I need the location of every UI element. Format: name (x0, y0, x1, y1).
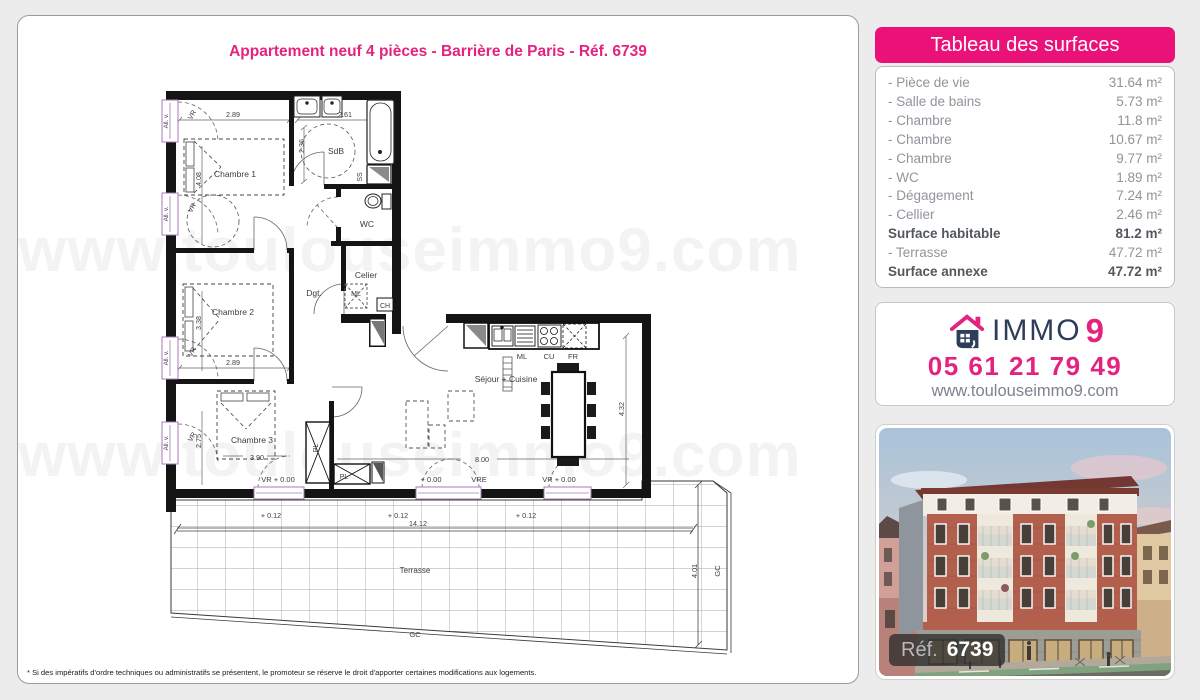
terrace (171, 481, 731, 654)
page-title: Appartement neuf 4 pièces - Barrière de … (18, 43, 858, 61)
toilet (365, 194, 391, 209)
svg-text:All. v.: All. v. (163, 113, 170, 128)
building-photo: Réf. 6739 (879, 428, 1171, 676)
surfaces-table: - Pièce de vie31.64 m² - Salle de bains5… (875, 66, 1175, 288)
label-wc: WC (360, 219, 374, 229)
ref-label: Réf. (901, 639, 938, 662)
surfaces-header: Tableau des surfaces (875, 27, 1175, 63)
svg-text:2.36: 2.36 (297, 139, 306, 153)
surface-row: - Pièce de vie31.64 m² (888, 74, 1162, 93)
label-chambre3: Chambre 3 (231, 435, 273, 445)
footnote: * Si des impératifs d'ordre techniques o… (27, 668, 536, 677)
svg-text:CU: CU (544, 352, 555, 361)
svg-text:+ 0.12: + 0.12 (388, 511, 408, 520)
svg-text:VR: VR (187, 202, 198, 214)
building-photo-card: Réf. 6739 (875, 424, 1175, 680)
label-sdb: SdB (328, 146, 344, 156)
surface-row: - Terrasse47.72 m² (888, 244, 1162, 263)
svg-text:All. v.: All. v. (163, 435, 170, 450)
svg-text:VR + 0.00: VR + 0.00 (261, 475, 295, 484)
floor-plan: Chambre 1 SdB WC Celier Dgt. Chambre 2 C… (18, 16, 859, 684)
svg-text:GC: GC (713, 565, 722, 577)
surface-row: - Chambre11.8 m² (888, 112, 1162, 131)
furniture (183, 96, 599, 484)
svg-text:2.61: 2.61 (338, 110, 352, 119)
label-cellier: Celier (355, 270, 377, 280)
plan-card: www.toulouseimmo9.com www.toulouseimmo9.… (17, 15, 859, 684)
surface-row: - Salle de bains5.73 m² (888, 93, 1162, 112)
svg-text:+ 0.12: + 0.12 (261, 511, 281, 520)
surfaces-header-label: Tableau des surfaces (930, 34, 1119, 57)
surface-row: - Dégagement7.24 m² (888, 187, 1162, 206)
svg-text:4.08: 4.08 (194, 172, 203, 186)
svg-text:2.89: 2.89 (226, 110, 240, 119)
ref-number: 6739 (947, 638, 994, 662)
surface-row: - Cellier2.46 m² (888, 206, 1162, 225)
svg-text:CH: CH (380, 303, 390, 310)
svg-text:FR: FR (568, 352, 579, 361)
surface-row: - Chambre10.67 m² (888, 131, 1162, 150)
sofa (406, 391, 474, 448)
svg-text:PL: PL (313, 444, 320, 453)
svg-text:VR + 0.00: VR + 0.00 (542, 475, 576, 484)
surface-row: - WC1.89 m² (888, 169, 1162, 188)
surface-row: - Chambre9.77 m² (888, 150, 1162, 169)
website-link[interactable]: www.toulouseimmo9.com (876, 382, 1174, 401)
svg-text:3.38: 3.38 (194, 316, 203, 330)
agency-card: IMMO9 05 61 21 79 49 www.toulouseimmo9.c… (875, 302, 1175, 406)
label-dgt: Dgt. (306, 288, 322, 298)
turning-circle-chambre1 (187, 195, 239, 247)
svg-text:VRE: VRE (471, 475, 486, 484)
svg-text:ML: ML (517, 352, 527, 361)
brand-immo: IMMO (992, 314, 1082, 348)
svg-text:GC: GC (409, 630, 421, 639)
surface-row-total-annexe: Surface annexe47.72 m² (888, 263, 1162, 282)
svg-text:4.32: 4.32 (617, 402, 626, 416)
svg-text:All. v.: All. v. (163, 350, 170, 365)
label-terrasse: Terrasse (400, 566, 431, 575)
svg-text:ML: ML (351, 291, 361, 298)
bed-chambre3 (217, 391, 275, 459)
phone-number[interactable]: 05 61 21 79 49 (876, 351, 1174, 382)
agency-logo: IMMO9 (876, 312, 1174, 350)
svg-text:14.12: 14.12 (409, 519, 427, 528)
label-sejour: Séjour + Cuisine (475, 374, 538, 384)
brick-towers (927, 514, 1137, 622)
label-chambre1: Chambre 1 (214, 169, 256, 179)
svg-text:PL: PL (340, 474, 349, 481)
svg-text:3.90: 3.90 (250, 453, 264, 462)
surface-row-total-habitable: Surface habitable81.2 m² (888, 225, 1162, 244)
svg-text:8.00: 8.00 (475, 455, 489, 464)
dining-table (541, 363, 596, 466)
kitchen-counter (489, 323, 599, 349)
svg-text:All. v.: All. v. (163, 206, 170, 221)
duct-box (372, 462, 384, 483)
double-sink (294, 96, 342, 117)
svg-text:SS: SS (357, 172, 364, 182)
svg-text:+ 0.12: + 0.12 (516, 511, 536, 520)
svg-text:2.89: 2.89 (226, 358, 240, 367)
svg-text:4.01: 4.01 (690, 564, 699, 578)
svg-text:+ 0.00: + 0.00 (420, 475, 441, 484)
house-icon (946, 312, 988, 350)
bathtub (367, 100, 394, 164)
svg-text:VR: VR (187, 109, 198, 121)
label-chambre2: Chambre 2 (212, 307, 254, 317)
ref-badge: Réf. 6739 (889, 634, 1005, 666)
brand-nine: 9 (1086, 312, 1104, 350)
